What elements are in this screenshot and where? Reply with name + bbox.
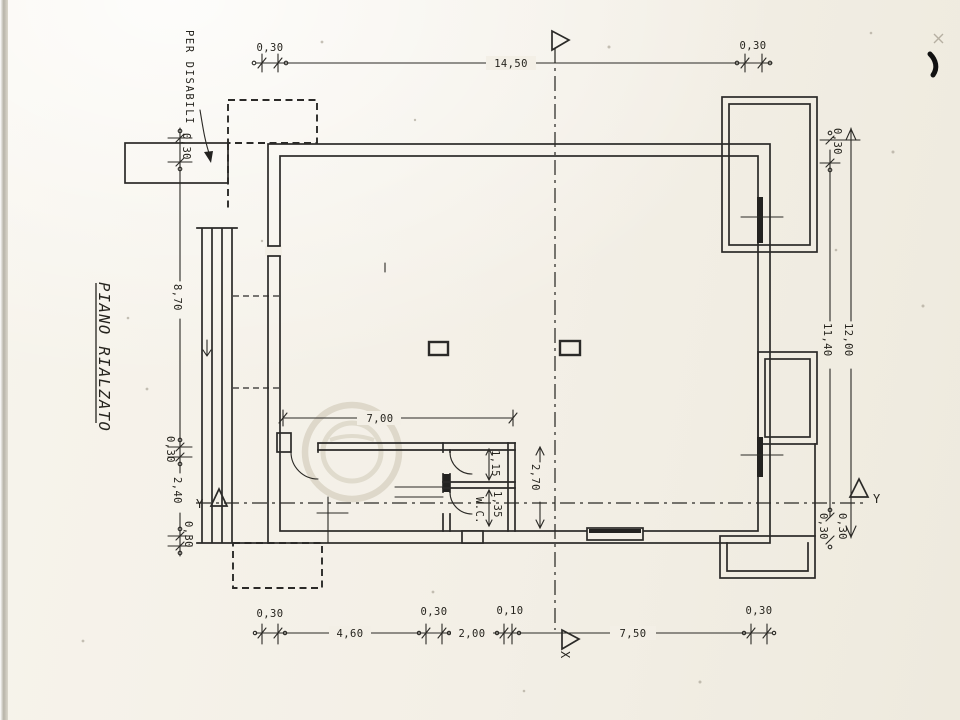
dim-bottom-wall-right: 0,30	[746, 605, 773, 617]
dim-top-wall-right: 0,30	[740, 40, 767, 52]
axis-triangle-top	[552, 31, 569, 50]
interior-partitions	[277, 433, 515, 543]
section-marks	[317, 497, 348, 543]
door-swing-arc	[450, 452, 472, 474]
left-stairs	[197, 228, 268, 543]
dim-right-wall-bottom-inner: 0,30	[817, 513, 829, 540]
annotations: PER DISABILI PIANO RIALZATO	[95, 30, 213, 432]
dim-top-width: 14,50	[494, 58, 528, 70]
dim-top-wall-left: 0,30	[257, 42, 284, 54]
accessibility-arrowhead	[204, 151, 213, 163]
counter-lines	[395, 487, 443, 497]
dimension-right: 0,30 11,40 12,00 0,30 0,30	[817, 128, 860, 549]
dim-left-wall-bottom: 0,30	[182, 521, 194, 548]
dim-bottom-opening: 2,00	[459, 628, 486, 640]
dim-left-wall-mid: 0,30	[164, 436, 176, 463]
dim-bottom-wall-mid: 0,30	[421, 606, 448, 618]
dim-hall-width: 7,00	[367, 413, 394, 425]
dim-right-height-inner: 11,40	[821, 323, 833, 357]
scan-specks	[82, 32, 925, 693]
building-walls	[265, 97, 817, 578]
accessibility-arrow	[200, 110, 210, 156]
axis-label-y-left: Y	[196, 497, 204, 511]
pen-mark	[930, 34, 943, 75]
dimension-interior: 7,00 2,70 1,15 1,35 W.C.	[279, 410, 544, 528]
dimension-bottom: 0,30 4,60 0,30 2,00 0,10 7,50 0,30	[253, 605, 775, 644]
dashed-canopy-bottom	[233, 543, 322, 588]
east-window-lower	[757, 437, 763, 477]
dashed-canopy-top	[228, 100, 317, 143]
axis-label-x: X	[558, 651, 572, 659]
pillar	[429, 342, 448, 355]
mid-right-bay	[758, 352, 817, 444]
dim-wc-depth: 1,35	[491, 491, 503, 518]
pillar	[560, 341, 580, 355]
wall-pier	[277, 433, 291, 452]
accessibility-note: PER DISABILI	[183, 30, 195, 125]
east-window-upper	[757, 197, 763, 243]
dim-left-stairs: 2,40	[171, 477, 183, 504]
dim-bottom-step: 0,10	[497, 605, 524, 617]
axis-triangle-right	[850, 479, 868, 497]
axis-label-y-right: Y	[873, 492, 881, 506]
dim-right-height-outer: 12,00	[842, 323, 854, 357]
dim-bottom-span-right: 7,50	[620, 628, 647, 640]
axis-markers: X Y Y	[196, 31, 881, 659]
wc-room-label: W.C.	[473, 497, 485, 524]
dashed-outlines	[228, 100, 322, 588]
access-platform	[125, 143, 228, 183]
dim-left-wall-top: 0,30	[180, 133, 192, 160]
dimension-top: 0,30 14,50 0,30	[252, 40, 772, 72]
floor-plan-drawing: X Y Y 0,30 14,50 0,30 0,30 8,70 0,30 2,4…	[0, 0, 960, 720]
dim-left-depth: 8,70	[171, 284, 183, 311]
dim-right-wall-top: 0,30	[831, 128, 843, 155]
pillars	[429, 341, 580, 355]
dim-right-wall-bottom-outer: 0,30	[836, 513, 848, 540]
scanned-floor-plan-page: X Y Y 0,30 14,50 0,30 0,30 8,70 0,30 2,4…	[0, 0, 960, 720]
dim-antibagno-depth: 1,15	[489, 450, 501, 477]
dim-bottom-wall-left: 0,30	[257, 608, 284, 620]
floor-title: PIANO RIALZATO	[95, 282, 113, 432]
dimension-left: 0,30 8,70 0,30 2,40 0,30	[164, 128, 194, 556]
dim-bottom-span-left: 4,60	[337, 628, 364, 640]
dim-hall-depth: 2,70	[529, 464, 541, 491]
stair-direction-arrow	[203, 340, 211, 356]
